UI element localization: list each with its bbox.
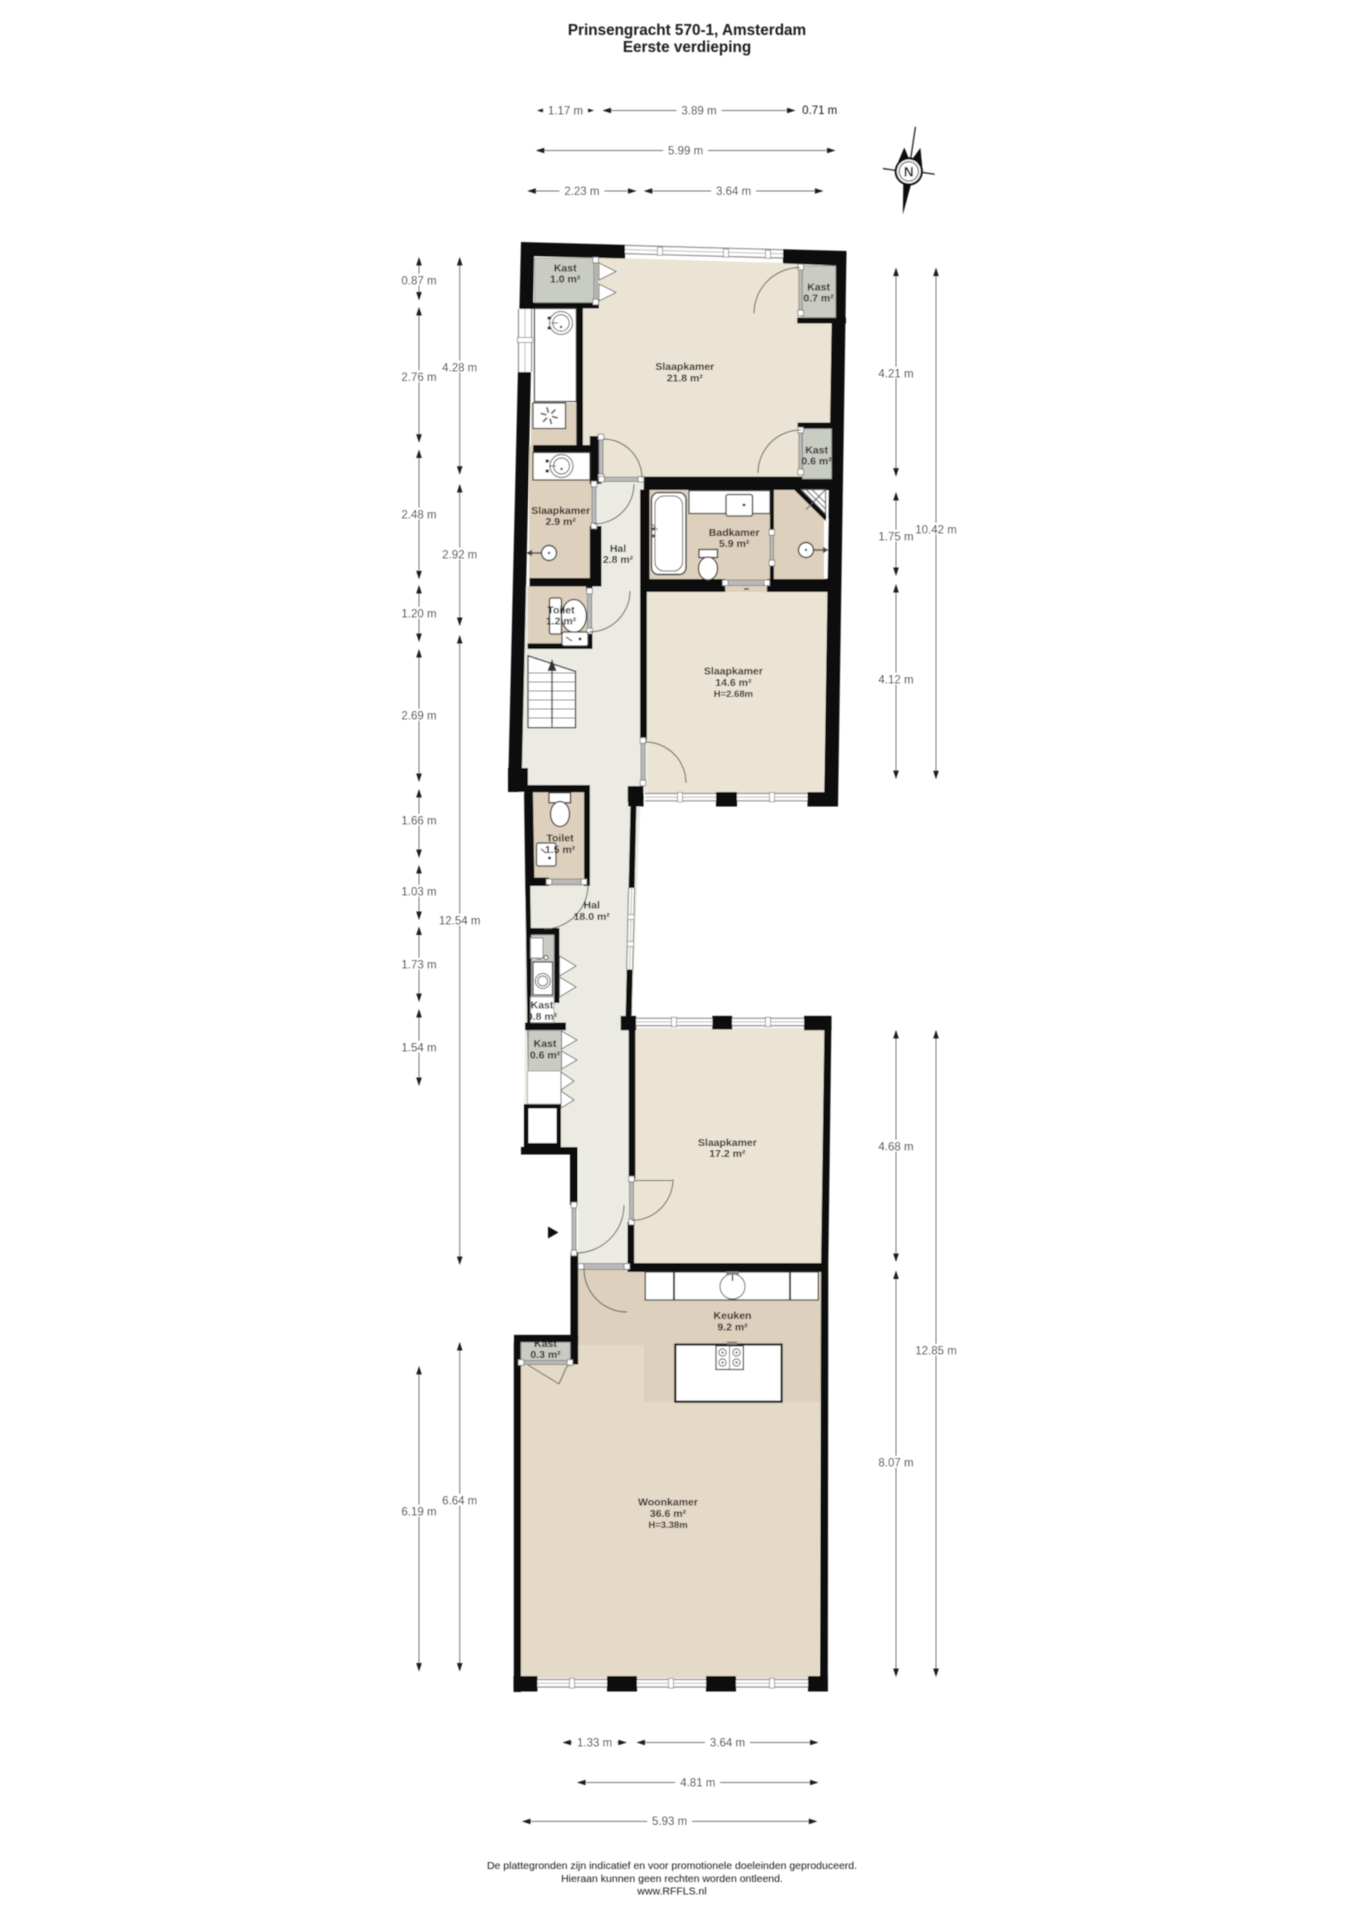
svg-text:8.07 m: 8.07 m <box>878 1458 913 1470</box>
svg-text:1.66 m: 1.66 m <box>401 816 436 828</box>
svg-text:18.0 m²: 18.0 m² <box>574 911 611 923</box>
svg-text:0.6 m²: 0.6 m² <box>530 1050 561 1062</box>
svg-text:14.6 m²: 14.6 m² <box>715 677 752 689</box>
svg-text:Slaapkamer: Slaapkamer <box>704 666 763 678</box>
svg-text:Prinsengracht 570-1, Amsterdam: Prinsengracht 570-1, Amsterdam <box>568 22 806 39</box>
svg-text:21.8 m²: 21.8 m² <box>667 373 704 385</box>
svg-text:0.7 m²: 0.7 m² <box>803 293 834 305</box>
svg-text:1.17 m: 1.17 m <box>548 105 583 117</box>
svg-text:5.9 m²: 5.9 m² <box>719 538 750 550</box>
svg-text:Woonkamer: Woonkamer <box>638 1497 698 1509</box>
svg-text:0.71 m: 0.71 m <box>802 105 837 117</box>
svg-text:De plattegronden zijn indicati: De plattegronden zijn indicatief en voor… <box>487 1860 857 1872</box>
svg-text:2.92 m: 2.92 m <box>442 550 477 562</box>
svg-text:Hal: Hal <box>584 900 600 912</box>
svg-text:3.64 m: 3.64 m <box>716 186 751 198</box>
svg-text:3.64 m: 3.64 m <box>710 1737 745 1749</box>
svg-text:5.93 m: 5.93 m <box>652 1816 687 1828</box>
svg-text:2.9 m²: 2.9 m² <box>546 516 577 528</box>
svg-text:Hieraan kunnen geen rechten wo: Hieraan kunnen geen rechten worden ontle… <box>561 1873 783 1885</box>
svg-text:2.76 m: 2.76 m <box>401 372 436 384</box>
svg-text:4.12 m: 4.12 m <box>878 675 913 687</box>
svg-text:www.RFFLS.nl: www.RFFLS.nl <box>636 1886 706 1898</box>
svg-text:9.2 m²: 9.2 m² <box>717 1322 748 1334</box>
svg-text:Keuken: Keuken <box>714 1310 752 1322</box>
svg-text:1.75 m: 1.75 m <box>878 532 913 544</box>
svg-text:4.81 m: 4.81 m <box>680 1777 715 1789</box>
svg-text:4.28 m: 4.28 m <box>442 362 477 374</box>
svg-text:0.87 m: 0.87 m <box>401 275 436 287</box>
svg-text:1.20 m: 1.20 m <box>401 609 436 621</box>
svg-text:0.6 m²: 0.6 m² <box>801 456 832 468</box>
svg-text:6.64 m: 6.64 m <box>442 1496 477 1508</box>
svg-text:1.54 m: 1.54 m <box>401 1043 436 1055</box>
svg-text:2.23 m: 2.23 m <box>564 186 599 198</box>
svg-text:12.85 m: 12.85 m <box>915 1346 957 1358</box>
svg-text:1.2 m²: 1.2 m² <box>546 616 577 628</box>
svg-text:0.8 m²: 0.8 m² <box>527 1011 558 1023</box>
svg-text:1.73 m: 1.73 m <box>401 960 436 972</box>
svg-text:N: N <box>904 164 914 179</box>
svg-text:6.19 m: 6.19 m <box>401 1507 436 1519</box>
svg-text:17.2 m²: 17.2 m² <box>709 1148 746 1160</box>
svg-text:Eerste verdieping: Eerste verdieping <box>623 39 751 56</box>
svg-text:1.03 m: 1.03 m <box>401 887 436 899</box>
svg-text:2.69 m: 2.69 m <box>401 711 436 723</box>
svg-text:Kast: Kast <box>531 1000 554 1012</box>
svg-text:1.5 m²: 1.5 m² <box>545 844 576 856</box>
svg-text:1.33 m: 1.33 m <box>577 1737 612 1749</box>
svg-text:0.3 m²: 0.3 m² <box>530 1349 561 1361</box>
svg-text:4.21 m: 4.21 m <box>878 368 913 380</box>
svg-text:Toilet: Toilet <box>546 833 574 845</box>
svg-text:H=3.38m: H=3.38m <box>648 1520 687 1531</box>
svg-text:Kast: Kast <box>534 1038 557 1050</box>
svg-text:12.54 m: 12.54 m <box>439 916 481 928</box>
svg-text:3.89 m: 3.89 m <box>681 105 716 117</box>
svg-text:10.42 m: 10.42 m <box>915 525 957 537</box>
svg-text:2.48 m: 2.48 m <box>401 510 436 522</box>
svg-text:1.0 m²: 1.0 m² <box>550 274 581 286</box>
svg-text:36.6 m²: 36.6 m² <box>650 1508 687 1520</box>
svg-text:H=2.68m: H=2.68m <box>714 689 753 700</box>
svg-text:5.99 m: 5.99 m <box>668 145 703 157</box>
svg-text:4.68 m: 4.68 m <box>878 1142 913 1154</box>
svg-text:2.8 m²: 2.8 m² <box>603 554 634 566</box>
svg-text:Slaapkamer: Slaapkamer <box>655 361 714 373</box>
